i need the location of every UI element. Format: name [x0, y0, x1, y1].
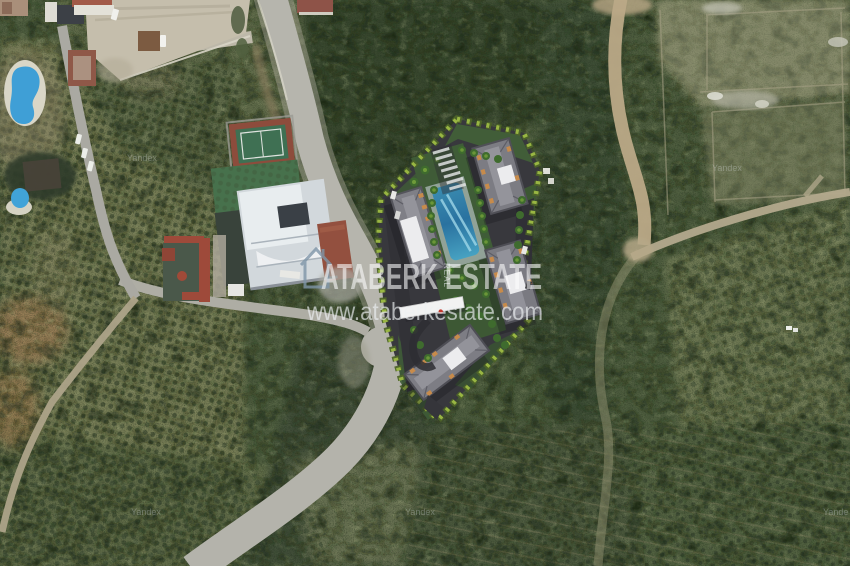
svg-text:www.ataberkestate.com: www.ataberkestate.com	[306, 298, 543, 326]
svg-text:Yandex: Yandex	[712, 163, 742, 173]
svg-text:Yandex: Yandex	[405, 507, 435, 517]
svg-text:ATABERK: ATABERK	[321, 256, 438, 297]
svg-text:Yandex: Yandex	[131, 507, 161, 517]
svg-text:Yandex: Yandex	[127, 153, 157, 163]
svg-text:ESTATE: ESTATE	[445, 256, 542, 297]
svg-text:Yande: Yande	[823, 507, 848, 517]
